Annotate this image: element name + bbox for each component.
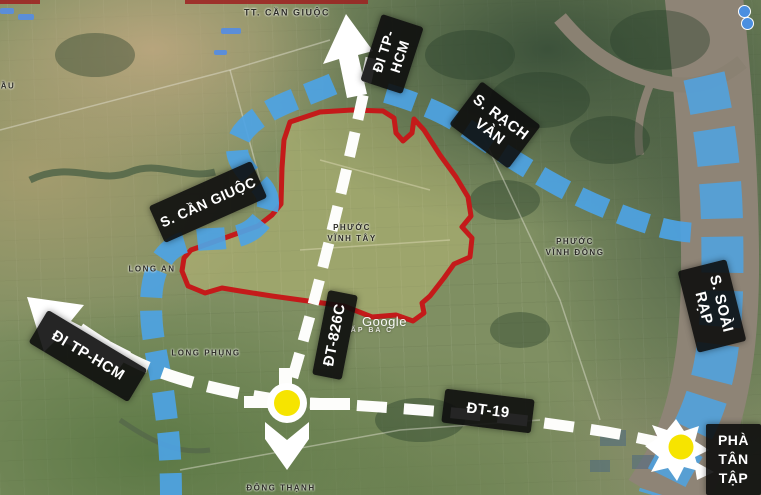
- label-tan-tap-ferry: PHÀ TÂN TẬP: [706, 424, 761, 495]
- road-badge-icon: [214, 50, 227, 55]
- place-label-edge-fragment: ẦU: [1, 80, 16, 91]
- google-watermark: Google: [362, 314, 407, 329]
- place-label-long-an: LONG AN: [128, 263, 175, 274]
- road-badge-icon: [18, 14, 34, 20]
- road-badge-icon: [0, 8, 14, 14]
- map-canvas[interactable]: TT. CẦN GIUỘC PHƯỚC VĨNH TÂY PHƯỚC VĨNH …: [0, 0, 761, 495]
- place-label-town: TT. CẦN GIUỘC: [244, 7, 330, 20]
- poi-marker-icon: [741, 17, 754, 30]
- place-label-phuoc-vinh-tay: PHƯỚC VĨNH TÂY: [327, 222, 376, 244]
- creek: [30, 168, 215, 180]
- ferry-junction-icon: [669, 435, 694, 460]
- place-label-dong-thanh: ĐÔNG THẠNH: [246, 482, 315, 493]
- south-chevron-icon: [265, 422, 309, 470]
- place-label-phuoc-vinh-dong: PHƯỚC VĨNH ĐÔNG: [546, 236, 605, 258]
- poi-marker-icon: [738, 5, 751, 18]
- roundabout-junction-icon: [274, 390, 300, 416]
- place-label-long-phung: LONG PHỤNG: [171, 347, 240, 358]
- road-badge-icon: [221, 28, 241, 34]
